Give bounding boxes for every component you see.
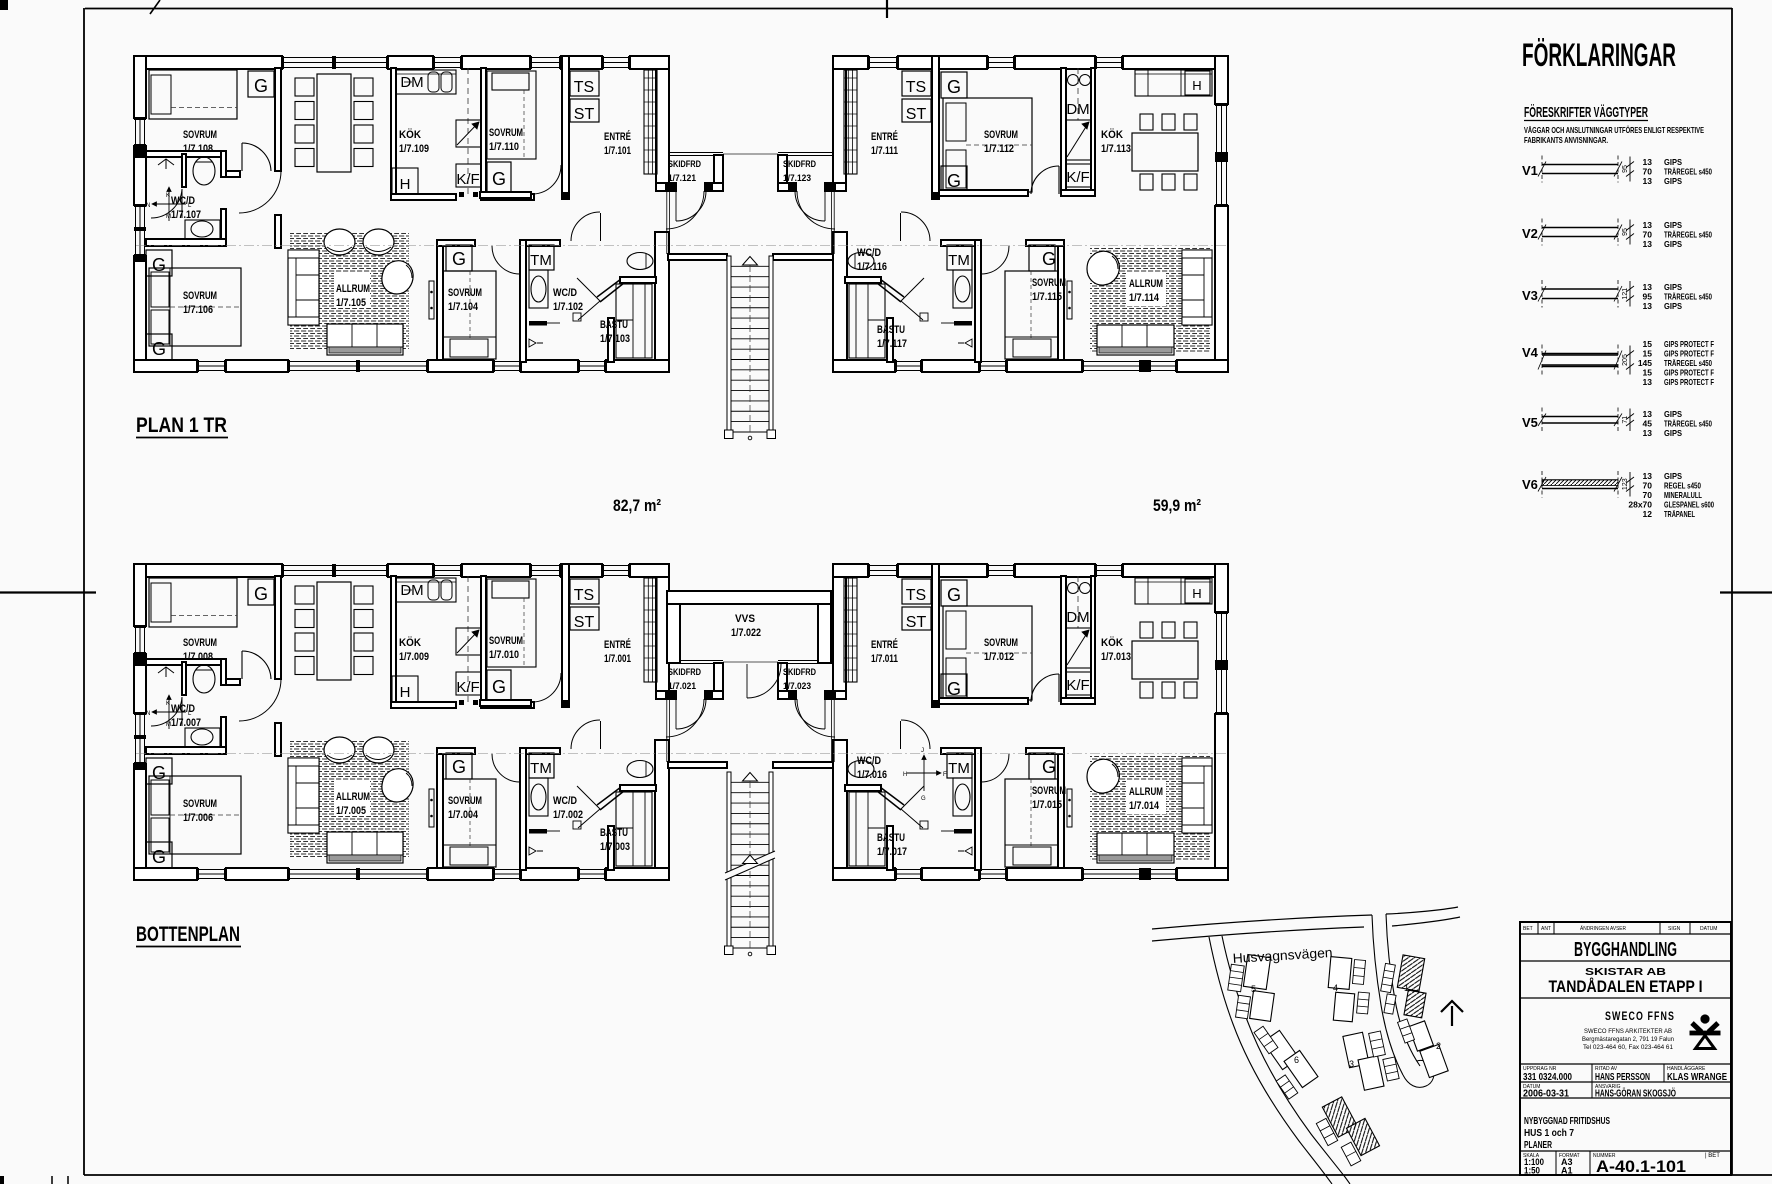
svg-text:1/7.002: 1/7.002 xyxy=(553,809,583,821)
svg-text:G: G xyxy=(492,169,506,189)
svg-text:BASTU: BASTU xyxy=(600,319,628,331)
svg-text:ENTRÉ: ENTRÉ xyxy=(604,638,631,651)
svg-text:15: 15 xyxy=(1643,339,1653,349)
svg-text:H: H xyxy=(400,176,411,193)
svg-text:SOVRUM: SOVRUM xyxy=(183,290,217,302)
svg-text:DM: DM xyxy=(400,74,423,91)
svg-text:G: G xyxy=(1042,757,1056,777)
svg-text:70: 70 xyxy=(1643,490,1653,500)
svg-text:KLAS WRANGE: KLAS WRANGE xyxy=(1667,1071,1727,1083)
svg-text:FABRIKANTS ANVISNINGAR.: FABRIKANTS ANVISNINGAR. xyxy=(1524,135,1608,145)
svg-text:1/7.021: 1/7.021 xyxy=(668,681,696,691)
svg-text:1/7.101: 1/7.101 xyxy=(604,145,631,157)
svg-text:GIPS PROTECT F: GIPS PROTECT F xyxy=(1664,368,1714,378)
svg-text:G: G xyxy=(947,585,961,605)
svg-text:ENTRÉ: ENTRÉ xyxy=(871,638,898,651)
svg-text:13: 13 xyxy=(1643,428,1653,438)
svg-text:TRÄPANEL: TRÄPANEL xyxy=(1664,509,1695,519)
svg-text:12: 12 xyxy=(1643,509,1653,519)
svg-text:1/7.015: 1/7.015 xyxy=(1032,799,1062,811)
svg-text:ALLRUM: ALLRUM xyxy=(336,283,370,295)
svg-text:K/F: K/F xyxy=(456,171,479,188)
svg-text:1/7.010: 1/7.010 xyxy=(489,649,519,661)
svg-text:VVS: VVS xyxy=(735,613,755,625)
svg-text:G: G xyxy=(452,249,466,269)
svg-text:FÖRKLARINGAR: FÖRKLARINGAR xyxy=(1522,37,1676,73)
svg-text:REGEL s450: REGEL s450 xyxy=(1664,481,1701,491)
svg-text:13: 13 xyxy=(1643,409,1653,419)
svg-text:SOVRUM: SOVRUM xyxy=(984,129,1018,141)
svg-text:SIGN: SIGN xyxy=(1668,926,1681,932)
svg-text:1/7.022: 1/7.022 xyxy=(731,627,761,639)
svg-text:G: G xyxy=(254,76,268,96)
svg-text:1/7.005: 1/7.005 xyxy=(336,805,366,817)
svg-text:1/7.013: 1/7.013 xyxy=(1101,651,1131,663)
svg-text:13: 13 xyxy=(1643,282,1653,292)
svg-text:TS: TS xyxy=(906,587,926,604)
svg-text:1/7.115: 1/7.115 xyxy=(1032,291,1062,303)
svg-text:SOVRUM: SOVRUM xyxy=(1032,785,1066,797)
svg-text:TRÄREGEL s450: TRÄREGEL s450 xyxy=(1664,292,1712,302)
svg-text:| BET: | BET xyxy=(1705,1153,1720,1159)
svg-text:BYGGHANDLING: BYGGHANDLING xyxy=(1574,939,1677,961)
svg-text:MINERALULL: MINERALULL xyxy=(1664,490,1702,500)
svg-text:1/7.106: 1/7.106 xyxy=(183,304,213,316)
svg-text:ST: ST xyxy=(574,106,595,123)
svg-text:6: 6 xyxy=(1294,1055,1299,1065)
svg-text:GIPS: GIPS xyxy=(1664,220,1682,230)
svg-text:NYBYGGNAD FRITIDSHUS: NYBYGGNAD FRITIDSHUS xyxy=(1524,1115,1610,1127)
svg-text:PLAN 1 TR: PLAN 1 TR xyxy=(136,414,227,437)
svg-text:SWECO FFNS ARKITEKTER AB: SWECO FFNS ARKITEKTER AB xyxy=(1584,1028,1672,1035)
svg-text:70: 70 xyxy=(1643,167,1653,177)
svg-text:G: G xyxy=(152,339,166,359)
svg-text:WC/D: WC/D xyxy=(553,287,577,299)
svg-text:7: 7 xyxy=(1352,1122,1357,1132)
svg-text:15: 15 xyxy=(1643,349,1653,359)
svg-text:TM: TM xyxy=(530,760,552,777)
svg-text:GIPS: GIPS xyxy=(1664,282,1682,292)
svg-text:GIPS: GIPS xyxy=(1664,471,1682,481)
svg-text:TM: TM xyxy=(530,252,552,269)
svg-text:13: 13 xyxy=(1643,377,1653,387)
svg-text:TM: TM xyxy=(948,252,970,269)
svg-text:1/7.103: 1/7.103 xyxy=(600,333,630,345)
svg-text:VÄGGAR OCH ANSLUTNINGAR UTFÖRE: VÄGGAR OCH ANSLUTNINGAR UTFÖRES ENLIGT R… xyxy=(1524,125,1704,135)
svg-text:TM: TM xyxy=(948,760,970,777)
svg-text:K/F: K/F xyxy=(1066,169,1089,186)
svg-text:121: 121 xyxy=(1622,288,1629,300)
svg-text:G: G xyxy=(152,255,166,275)
svg-text:ÄNDRINGEN AVSER: ÄNDRINGEN AVSER xyxy=(1580,925,1626,932)
svg-text:1/7.014: 1/7.014 xyxy=(1129,800,1160,812)
svg-text:SKIDFRD: SKIDFRD xyxy=(783,667,816,677)
svg-text:SKIDFRD: SKIDFRD xyxy=(668,159,701,169)
svg-text:SKIDFRD: SKIDFRD xyxy=(783,159,816,169)
svg-text:TS: TS xyxy=(574,587,594,604)
svg-text:G: G xyxy=(947,679,961,699)
svg-text:SOVRUM: SOVRUM xyxy=(183,637,217,649)
svg-text:H: H xyxy=(1192,586,1201,601)
svg-text:1/7.105: 1/7.105 xyxy=(336,297,366,309)
svg-text:ST: ST xyxy=(574,614,595,631)
svg-text:TRÄREGEL s450: TRÄREGEL s450 xyxy=(1664,419,1712,429)
svg-text:1/7.104: 1/7.104 xyxy=(448,301,479,313)
svg-text:1/7.023: 1/7.023 xyxy=(783,681,811,691)
svg-text:1:50: 1:50 xyxy=(1524,1166,1540,1176)
svg-text:SOVRUM: SOVRUM xyxy=(489,127,523,139)
svg-text:K/F: K/F xyxy=(1066,677,1089,694)
svg-text:SOVRUM: SOVRUM xyxy=(1032,277,1066,289)
svg-text:3: 3 xyxy=(1349,1059,1354,1069)
svg-text:GIPS PROTECT F: GIPS PROTECT F xyxy=(1664,349,1714,359)
svg-text:15: 15 xyxy=(1643,368,1653,378)
svg-text:SOVRUM: SOVRUM xyxy=(984,637,1018,649)
svg-text:TS: TS xyxy=(906,79,926,96)
svg-text:1/7.016: 1/7.016 xyxy=(857,769,887,781)
svg-text:Bergmästaregatan 2, 791 19 Fal: Bergmästaregatan 2, 791 19 Falun xyxy=(1582,1036,1674,1043)
svg-text:GIPS: GIPS xyxy=(1664,176,1682,186)
svg-text:95: 95 xyxy=(1622,165,1629,173)
svg-text:70: 70 xyxy=(1643,230,1653,240)
svg-text:TANDÅDALEN ETAPP I: TANDÅDALEN ETAPP I xyxy=(1549,977,1703,996)
svg-text:TRÄREGEL s450: TRÄREGEL s450 xyxy=(1664,167,1712,177)
svg-text:F: F xyxy=(943,772,947,778)
svg-text:G: G xyxy=(947,77,961,97)
svg-text:1/7.112: 1/7.112 xyxy=(984,143,1014,155)
svg-text:GIPS: GIPS xyxy=(1664,239,1682,249)
svg-text:GIPS: GIPS xyxy=(1664,409,1682,419)
svg-text:1: 1 xyxy=(1404,983,1409,993)
svg-text:ANT: ANT xyxy=(1541,926,1551,932)
svg-text:GIPS: GIPS xyxy=(1664,301,1682,311)
svg-text:WC/D: WC/D xyxy=(857,247,881,259)
svg-text:WC/D: WC/D xyxy=(553,795,577,807)
svg-text:331 0324.000: 331 0324.000 xyxy=(1523,1071,1572,1083)
svg-text:TRÄREGEL s450: TRÄREGEL s450 xyxy=(1664,230,1712,240)
svg-text:HANS-GÖRAN SKOGSJÖ: HANS-GÖRAN SKOGSJÖ xyxy=(1595,1087,1676,1100)
svg-text:G: G xyxy=(947,171,961,191)
svg-text:DATUM: DATUM xyxy=(1700,926,1717,932)
svg-text:ST: ST xyxy=(906,106,927,123)
svg-text:V6: V6 xyxy=(1522,477,1538,492)
svg-text:13: 13 xyxy=(1643,301,1653,311)
svg-text:13: 13 xyxy=(1643,176,1653,186)
svg-text:G: G xyxy=(921,796,926,802)
svg-text:GIPS: GIPS xyxy=(1664,157,1682,167)
svg-text:H: H xyxy=(903,772,907,778)
svg-text:V1: V1 xyxy=(1522,163,1538,178)
svg-text:V5: V5 xyxy=(1522,415,1538,430)
svg-text:2006-03-31: 2006-03-31 xyxy=(1523,1088,1569,1100)
svg-text:SKIDFRD: SKIDFRD xyxy=(668,667,701,677)
svg-text:1/7.001: 1/7.001 xyxy=(604,653,631,665)
svg-text:1/7.123: 1/7.123 xyxy=(783,173,811,183)
svg-text:SOVRUM: SOVRUM xyxy=(448,795,482,807)
svg-text:DM: DM xyxy=(1066,609,1089,626)
svg-text:HANS PERSSON: HANS PERSSON xyxy=(1595,1071,1650,1083)
svg-text:1/7.011: 1/7.011 xyxy=(871,653,898,665)
svg-text:1/7.017: 1/7.017 xyxy=(877,846,907,858)
svg-text:1/7.107: 1/7.107 xyxy=(171,209,201,221)
svg-text:A-40.1-101: A-40.1-101 xyxy=(1596,1157,1686,1176)
svg-text:205: 205 xyxy=(1622,354,1629,366)
svg-text:V2: V2 xyxy=(1522,226,1538,241)
svg-text:G: G xyxy=(254,584,268,604)
svg-text:1/7.008: 1/7.008 xyxy=(183,651,213,663)
svg-text:1/7.110: 1/7.110 xyxy=(489,141,519,153)
svg-text:G: G xyxy=(452,757,466,777)
svg-text:13: 13 xyxy=(1643,157,1653,167)
svg-text:BASTU: BASTU xyxy=(877,832,905,844)
svg-text:70: 70 xyxy=(1643,481,1653,491)
svg-text:WC/D: WC/D xyxy=(171,703,195,715)
svg-text:SWECO FFNS: SWECO FFNS xyxy=(1605,1009,1675,1023)
svg-text:K/F: K/F xyxy=(456,679,479,696)
svg-text:KÖK: KÖK xyxy=(399,636,421,649)
svg-text:ALLRUM: ALLRUM xyxy=(336,791,370,803)
svg-text:1/7.116: 1/7.116 xyxy=(857,261,887,273)
svg-text:G: G xyxy=(152,847,166,867)
svg-text:G: G xyxy=(152,763,166,783)
svg-text:BASTU: BASTU xyxy=(877,324,905,336)
svg-text:1/7.108: 1/7.108 xyxy=(183,143,213,155)
svg-text:KÖK: KÖK xyxy=(1101,636,1123,649)
svg-text:V4: V4 xyxy=(1522,345,1539,360)
svg-text:KÖK: KÖK xyxy=(399,128,421,141)
svg-text:TRÄREGEL s450: TRÄREGEL s450 xyxy=(1664,358,1712,368)
svg-text:59,9 m²: 59,9 m² xyxy=(1153,496,1201,515)
svg-text:1/7.006: 1/7.006 xyxy=(183,812,213,824)
svg-text:ALLRUM: ALLRUM xyxy=(1129,786,1163,798)
svg-text:WC/D: WC/D xyxy=(857,755,881,767)
svg-text:SOVRUM: SOVRUM xyxy=(183,129,217,141)
svg-text:1/7.111: 1/7.111 xyxy=(871,145,898,157)
svg-text:SOVRUM: SOVRUM xyxy=(489,635,523,647)
svg-text:BASTU: BASTU xyxy=(600,827,628,839)
svg-text:95: 95 xyxy=(1622,228,1629,236)
svg-text:SOVRUM: SOVRUM xyxy=(183,798,217,810)
svg-text:95: 95 xyxy=(1643,292,1653,302)
svg-text:1/7.121: 1/7.121 xyxy=(668,173,696,183)
svg-text:1/7.004: 1/7.004 xyxy=(448,809,479,821)
svg-text:GIPS PROTECT F: GIPS PROTECT F xyxy=(1664,339,1714,349)
svg-text:145: 145 xyxy=(1638,358,1652,368)
svg-text:DM: DM xyxy=(400,582,423,599)
svg-text:H: H xyxy=(1192,78,1201,93)
svg-text:KÖK: KÖK xyxy=(1101,128,1123,141)
svg-text:ENTRÉ: ENTRÉ xyxy=(871,130,898,143)
svg-text:BOTTENPLAN: BOTTENPLAN xyxy=(136,923,240,946)
svg-text:5: 5 xyxy=(1251,984,1256,994)
svg-text:13: 13 xyxy=(1643,471,1653,481)
svg-text:GIPS PROTECT F: GIPS PROTECT F xyxy=(1664,377,1714,387)
svg-text:13: 13 xyxy=(1643,239,1653,249)
svg-text:28x70: 28x70 xyxy=(1628,500,1652,510)
svg-text:TS: TS xyxy=(574,79,594,96)
svg-text:FÖRESKRIFTER VÄGGTYPER: FÖRESKRIFTER VÄGGTYPER xyxy=(1524,104,1648,121)
svg-text:1/7.102: 1/7.102 xyxy=(553,301,583,313)
svg-text:DM: DM xyxy=(1066,101,1089,118)
svg-text:G: G xyxy=(492,677,506,697)
svg-text:123: 123 xyxy=(1622,478,1629,490)
svg-text:GLESPANEL s600: GLESPANEL s600 xyxy=(1664,500,1714,510)
svg-text:GIPS: GIPS xyxy=(1664,428,1682,438)
svg-text:PLANER: PLANER xyxy=(1524,1139,1552,1151)
svg-text:WC/D: WC/D xyxy=(171,195,195,207)
svg-text:4: 4 xyxy=(1333,983,1338,993)
svg-text:1/7.113: 1/7.113 xyxy=(1101,143,1131,155)
svg-text:A1: A1 xyxy=(1561,1166,1573,1176)
svg-text:1/7.109: 1/7.109 xyxy=(399,143,429,155)
svg-text:J: J xyxy=(921,748,924,754)
svg-text:1/7.117: 1/7.117 xyxy=(877,338,907,350)
svg-text:82,7 m²: 82,7 m² xyxy=(613,496,661,515)
svg-text:ST: ST xyxy=(906,614,927,631)
svg-text:1/7.012: 1/7.012 xyxy=(984,651,1014,663)
svg-text:45: 45 xyxy=(1643,419,1653,429)
svg-text:2: 2 xyxy=(1436,1041,1441,1051)
svg-text:SOVRUM: SOVRUM xyxy=(448,287,482,299)
svg-text:1/7.007: 1/7.007 xyxy=(171,717,201,729)
svg-text:G: G xyxy=(1042,249,1056,269)
svg-text:H: H xyxy=(400,684,411,701)
svg-text:1/7.003: 1/7.003 xyxy=(600,841,630,853)
svg-text:1/7.114: 1/7.114 xyxy=(1129,292,1160,304)
svg-text:Tel 023-464 60, Fax 023-464 61: Tel 023-464 60, Fax 023-464 61 xyxy=(1583,1044,1673,1051)
svg-text:71: 71 xyxy=(1622,416,1629,424)
svg-text:13: 13 xyxy=(1643,220,1653,230)
svg-text:BET: BET xyxy=(1523,926,1533,932)
svg-text:ALLRUM: ALLRUM xyxy=(1129,278,1163,290)
svg-text:V3: V3 xyxy=(1522,288,1538,303)
svg-text:ENTRÉ: ENTRÉ xyxy=(604,130,631,143)
svg-text:HUS 1 och 7: HUS 1 och 7 xyxy=(1524,1127,1574,1139)
svg-text:1/7.009: 1/7.009 xyxy=(399,651,429,663)
